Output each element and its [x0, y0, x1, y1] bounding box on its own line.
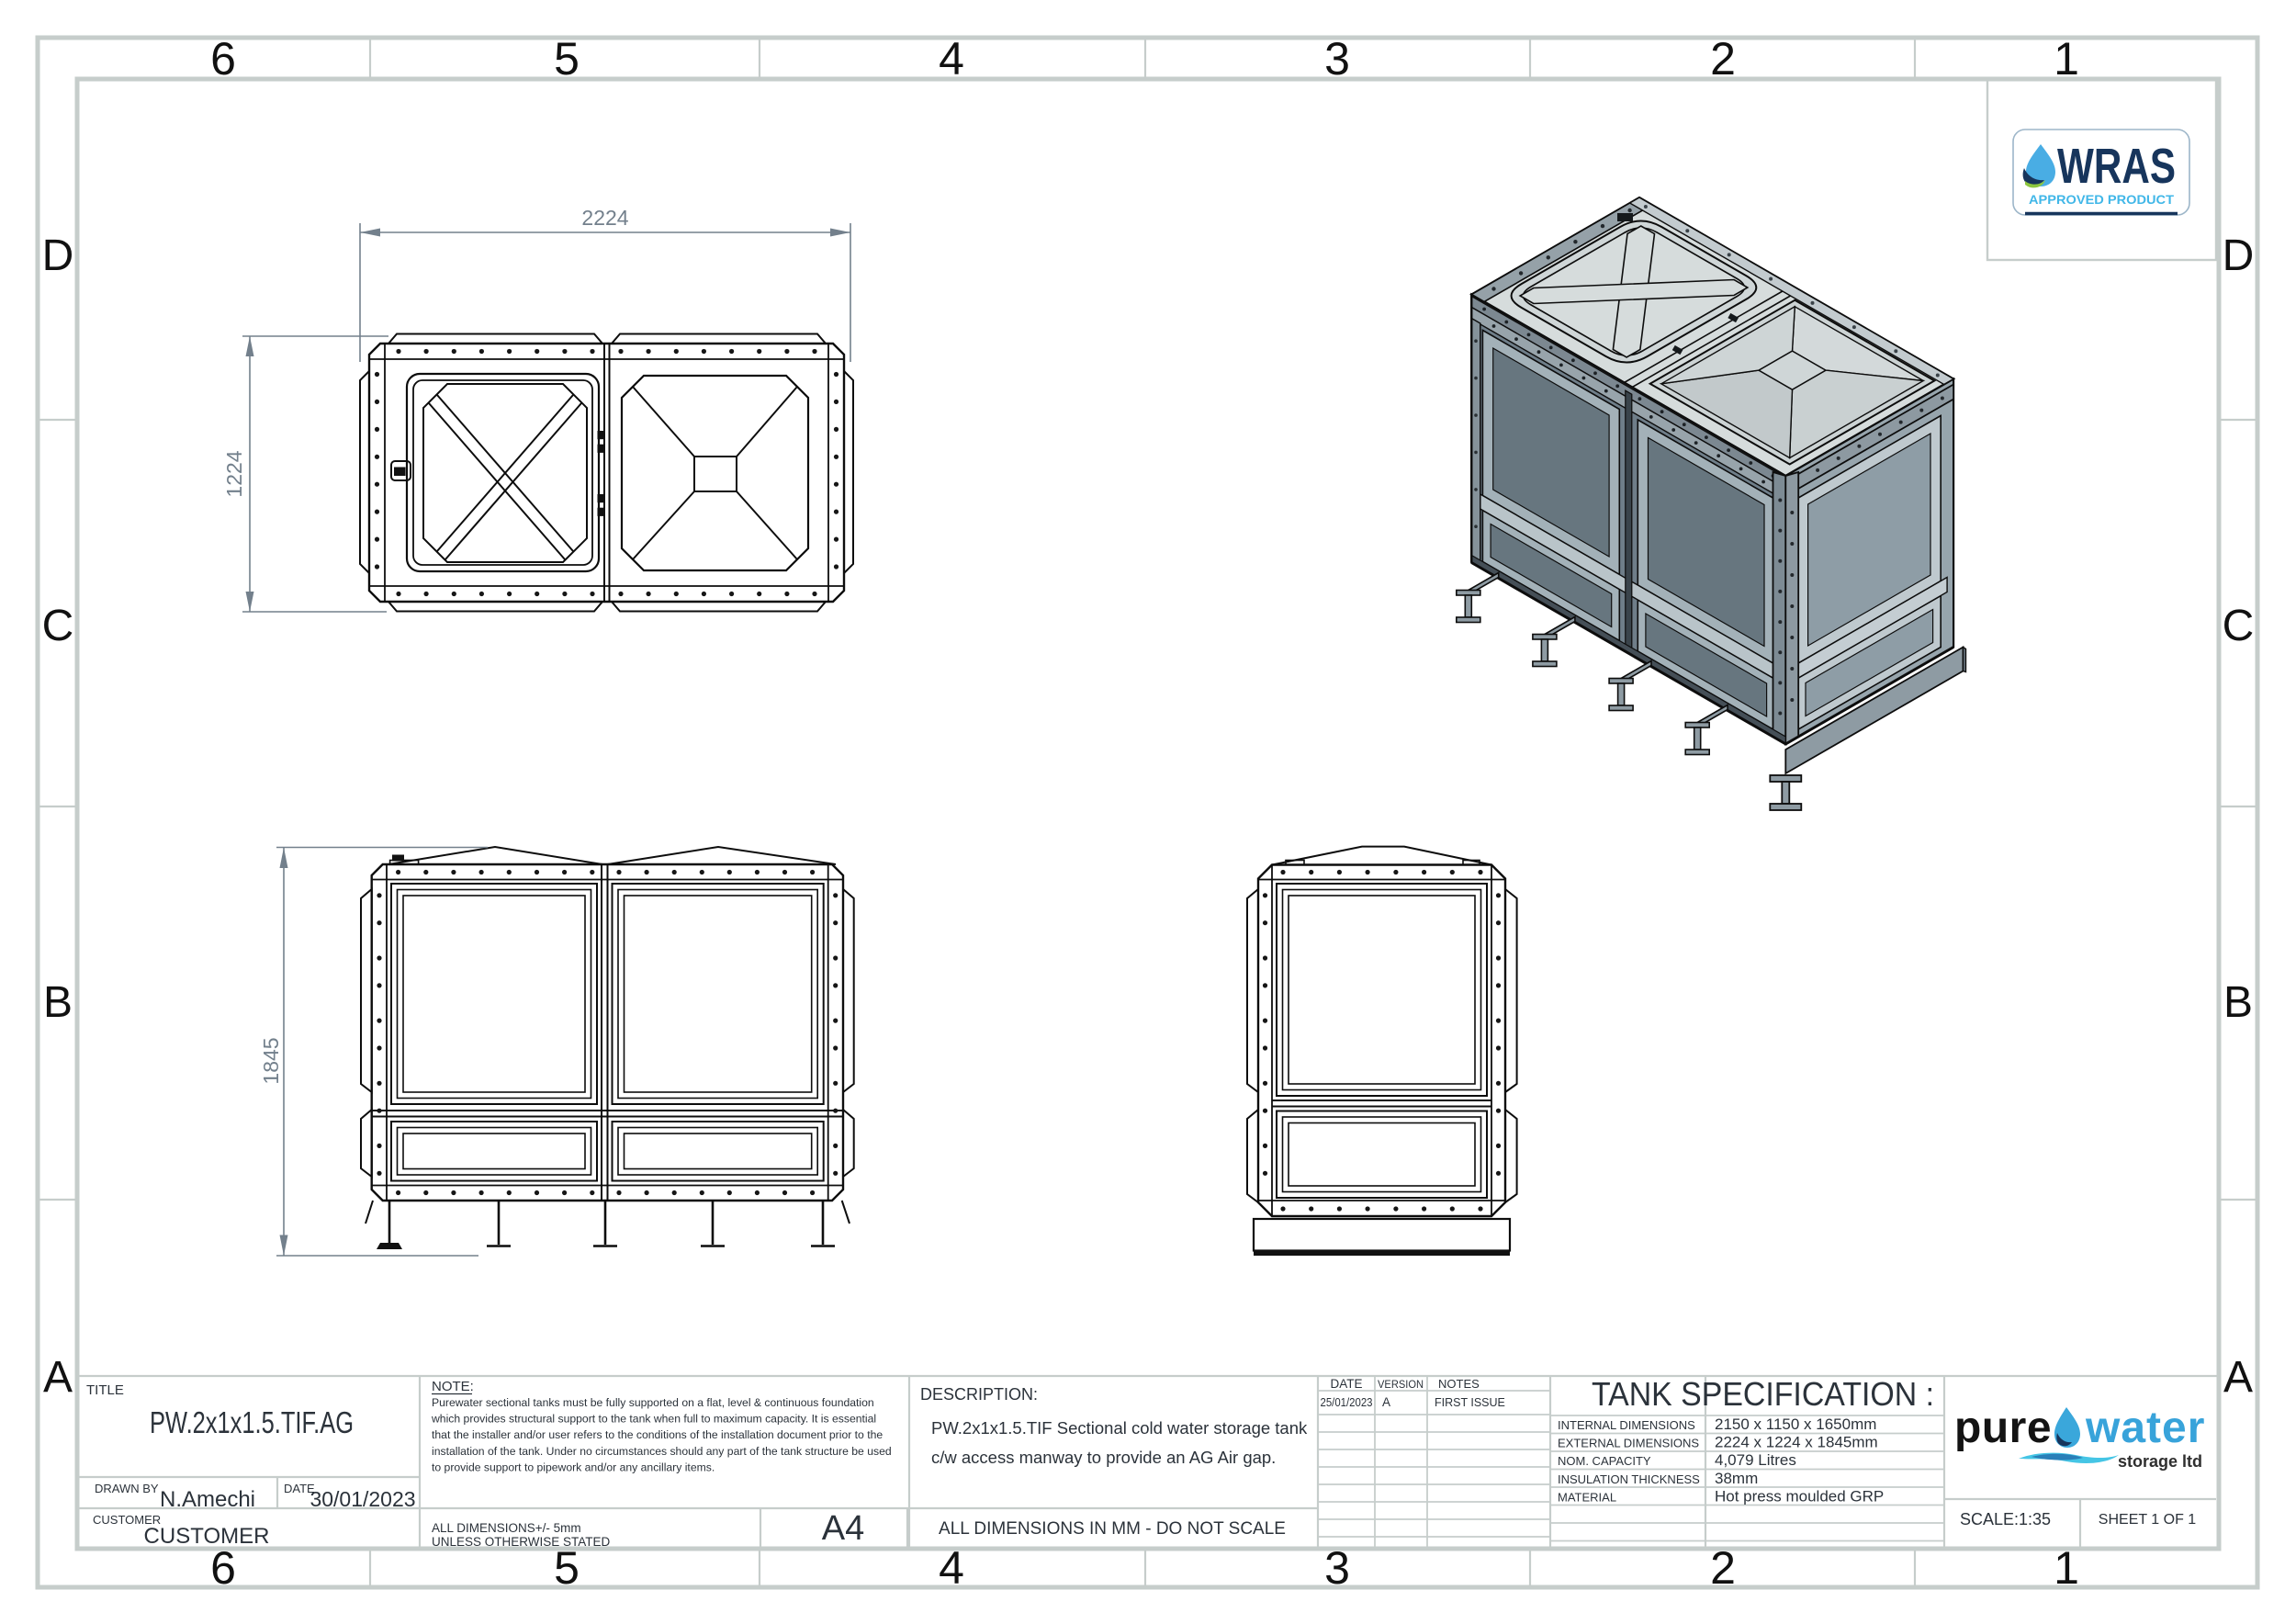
svg-text:A: A: [2223, 1353, 2253, 1402]
svg-text:30/01/2023: 30/01/2023: [310, 1487, 415, 1511]
svg-text:Purewater sectional tanks must: Purewater sectional tanks must be fully …: [432, 1396, 874, 1409]
svg-text:ALL DIMENSIONS IN MM - DO NOT: ALL DIMENSIONS IN MM - DO NOT SCALE: [939, 1519, 1286, 1539]
svg-text:1845: 1845: [259, 1037, 283, 1084]
svg-text:1: 1: [2054, 33, 2079, 85]
svg-text:6: 6: [210, 1542, 236, 1594]
svg-text:NOM. CAPACITY: NOM. CAPACITY: [1558, 1454, 1651, 1468]
svg-text:A: A: [43, 1353, 73, 1402]
svg-text:2224 x 1224 x 1845mm: 2224 x 1224 x 1845mm: [1715, 1434, 1878, 1451]
svg-text:C: C: [42, 602, 74, 650]
svg-text:38mm: 38mm: [1715, 1470, 1758, 1487]
svg-text:DESCRIPTION:: DESCRIPTION:: [920, 1385, 1038, 1404]
svg-text:SCALE:1:35: SCALE:1:35: [1960, 1510, 2051, 1528]
svg-text:D: D: [42, 231, 74, 280]
svg-text:to provide support to pipework: to provide support to pipework and/or an…: [432, 1460, 715, 1473]
svg-text:MATERIAL: MATERIAL: [1558, 1490, 1616, 1504]
svg-text:B: B: [2223, 978, 2253, 1027]
svg-text:water: water: [2085, 1404, 2205, 1452]
svg-text:EXTERNAL DIMENSIONS: EXTERNAL DIMENSIONS: [1558, 1437, 1699, 1450]
svg-text:that the installer and/or user: that the installer and/or user refers to…: [432, 1428, 883, 1441]
svg-text:SHEET 1 OF 1: SHEET 1 OF 1: [2099, 1512, 2197, 1528]
svg-text:CUSTOMER: CUSTOMER: [144, 1524, 270, 1549]
svg-text:3: 3: [1324, 1542, 1350, 1594]
svg-text:APPROVED PRODUCT: APPROVED PRODUCT: [2029, 192, 2174, 207]
svg-text:TITLE: TITLE: [86, 1382, 124, 1398]
svg-text:which provides structural supp: which provides structural support to the…: [431, 1413, 876, 1426]
svg-text:1: 1: [2054, 1542, 2079, 1594]
svg-text:2150 x 1150 x 1650mm: 2150 x 1150 x 1650mm: [1715, 1415, 1876, 1433]
svg-text:3: 3: [1324, 33, 1350, 85]
svg-text:TANK SPECIFICATION :: TANK SPECIFICATION :: [1592, 1375, 1934, 1413]
svg-text:5: 5: [554, 33, 580, 85]
svg-text:4,079 Litres: 4,079 Litres: [1715, 1451, 1796, 1469]
svg-text:storage ltd: storage ltd: [2118, 1452, 2202, 1471]
svg-text:NOTES: NOTES: [1438, 1377, 1480, 1391]
svg-text:UNLESS OTHERWISE STATED: UNLESS OTHERWISE STATED: [432, 1535, 611, 1549]
svg-text:PW.2x1x1.5.TIF.AG: PW.2x1x1.5.TIF.AG: [150, 1405, 354, 1439]
svg-text:A4: A4: [822, 1509, 864, 1548]
svg-text:c/w access manway to provide a: c/w access manway to provide an AG Air g…: [931, 1448, 1276, 1467]
svg-text:4: 4: [939, 1542, 964, 1594]
svg-text:6: 6: [210, 33, 236, 85]
svg-text:2: 2: [1710, 33, 1736, 85]
svg-text:pure: pure: [1954, 1404, 2052, 1452]
svg-text:ALL DIMENSIONS+/- 5mm: ALL DIMENSIONS+/- 5mm: [432, 1521, 581, 1535]
svg-text:2224: 2224: [581, 206, 628, 230]
svg-text:4: 4: [939, 33, 964, 85]
svg-text:A: A: [1382, 1395, 1390, 1409]
svg-text:C: C: [2223, 602, 2255, 650]
svg-text:2: 2: [1710, 1542, 1736, 1594]
svg-text:VERSION: VERSION: [1378, 1378, 1424, 1391]
svg-text:D: D: [2223, 231, 2255, 280]
svg-text:WRAS: WRAS: [2057, 139, 2176, 194]
svg-text:N.Amechi: N.Amechi: [160, 1487, 255, 1512]
svg-text:1224: 1224: [222, 450, 246, 497]
svg-text:25/01/2023: 25/01/2023: [1321, 1396, 1373, 1409]
svg-text:B: B: [43, 978, 73, 1027]
svg-text:installation of the tank. Unde: installation of the tank. Under no circu…: [432, 1445, 892, 1458]
svg-text:INSULATION THICKNESS: INSULATION THICKNESS: [1558, 1472, 1700, 1486]
svg-text:NOTE:: NOTE:: [432, 1379, 474, 1394]
svg-text:PW.2x1x1.5.TIF Sectional cold: PW.2x1x1.5.TIF Sectional cold water stor…: [931, 1418, 1308, 1438]
svg-text:5: 5: [554, 1542, 580, 1594]
svg-text:INTERNAL DIMENSIONS: INTERNAL DIMENSIONS: [1558, 1418, 1695, 1432]
svg-text:FIRST ISSUE: FIRST ISSUE: [1435, 1396, 1505, 1409]
svg-text:DATE: DATE: [1330, 1377, 1362, 1391]
svg-text:Hot press moulded GRP: Hot press moulded GRP: [1715, 1487, 1884, 1505]
svg-text:DRAWN BY: DRAWN BY: [95, 1482, 159, 1495]
